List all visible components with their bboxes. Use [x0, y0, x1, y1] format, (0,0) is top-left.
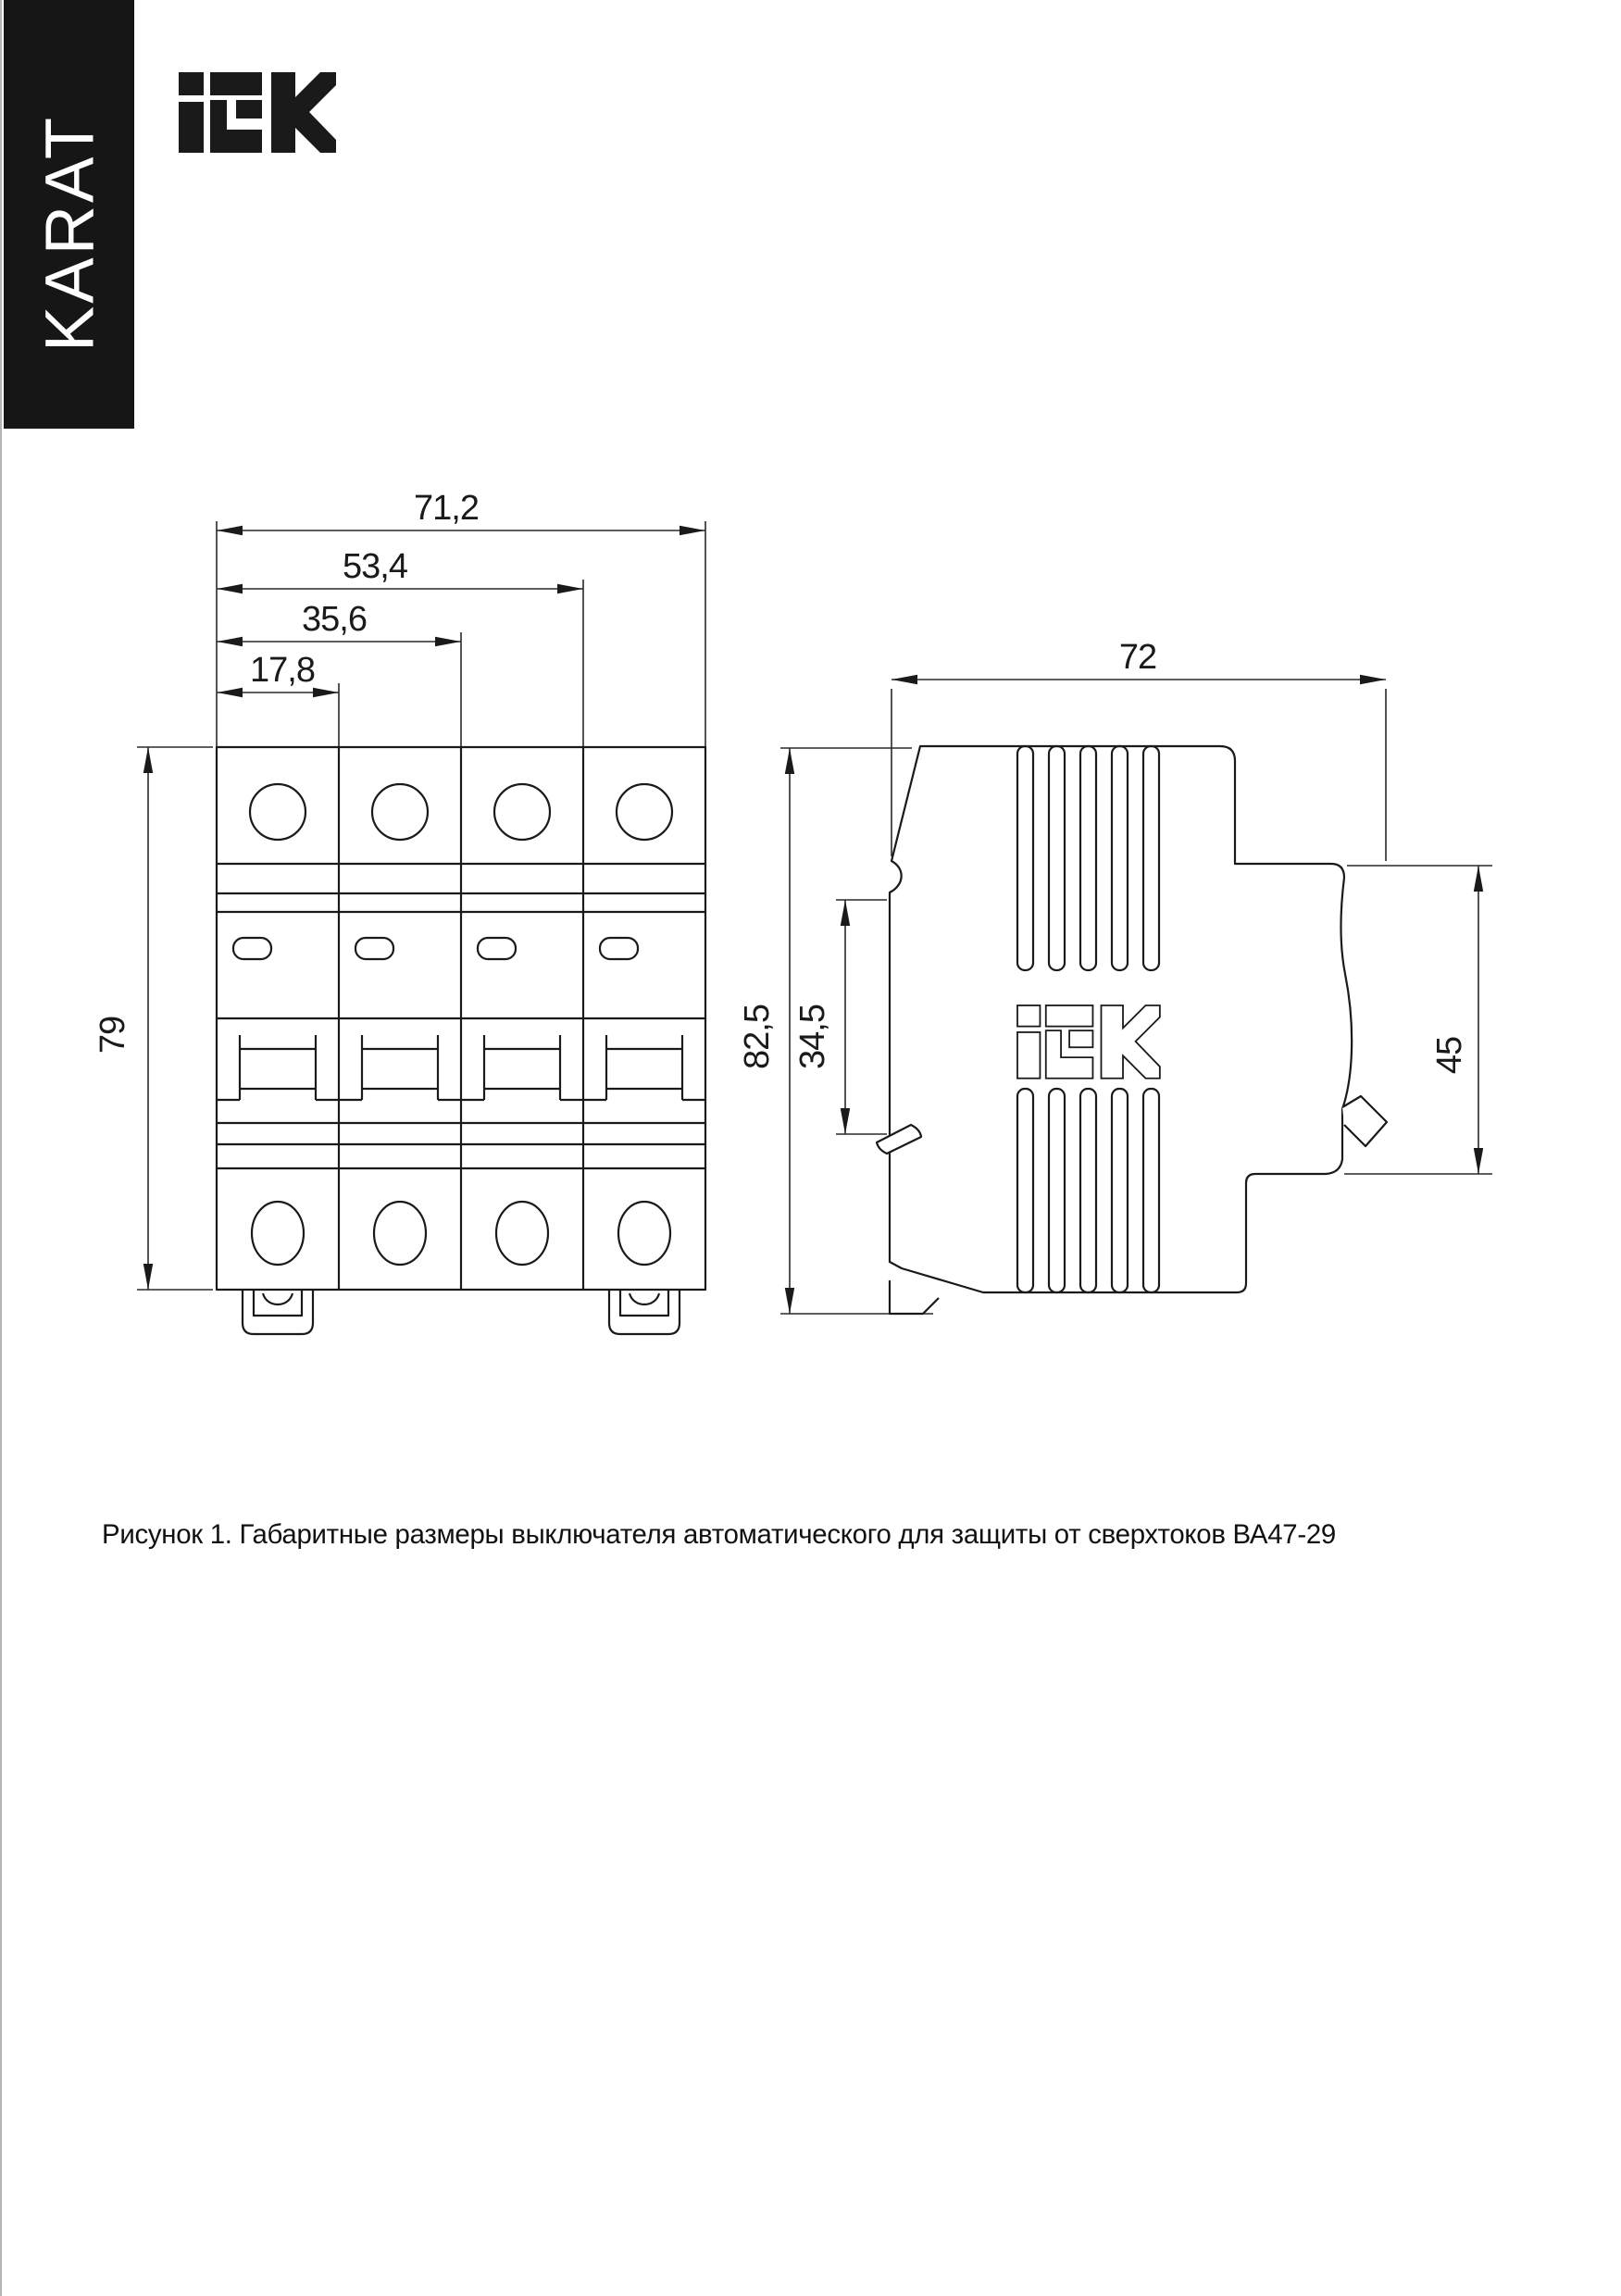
dim-label-two-modules: 35,6 — [302, 600, 367, 639]
clip-foot — [890, 1280, 939, 1314]
datasheet-page: KARAT 71,2 — [0, 0, 1621, 2296]
rail-latch-hook — [1342, 1096, 1387, 1146]
dim-label-height: 79 — [94, 1017, 132, 1054]
iek-logo — [179, 72, 336, 153]
dim-label-total-width: 71,2 — [414, 489, 479, 528]
dimensional-drawing: 71,2 53,4 35,6 17,8 79 — [0, 0, 1621, 2296]
dim-label-side-height: 82,5 — [738, 1004, 777, 1069]
side-view: 72 82,5 34,5 45 — [738, 638, 1492, 1314]
dim-label-rail-section: 45 — [1430, 1037, 1469, 1074]
front-view: 71,2 53,4 35,6 17,8 79 — [94, 489, 705, 1334]
din-clip-right — [609, 1290, 680, 1334]
figure-caption: Рисунок 1. Габаритные размеры выключател… — [102, 1519, 1463, 1551]
dim-label-front-plate: 34,5 — [793, 1004, 832, 1069]
dim-label-one-module: 17,8 — [250, 651, 315, 690]
front-top-extension-lines — [217, 521, 705, 747]
front-plate-extension-lines — [836, 900, 887, 1134]
side-body-outline — [890, 746, 1352, 1292]
dim-label-depth: 72 — [1119, 638, 1156, 677]
din-clip-left — [243, 1290, 313, 1334]
dim-label-three-modules: 53,4 — [343, 547, 408, 586]
